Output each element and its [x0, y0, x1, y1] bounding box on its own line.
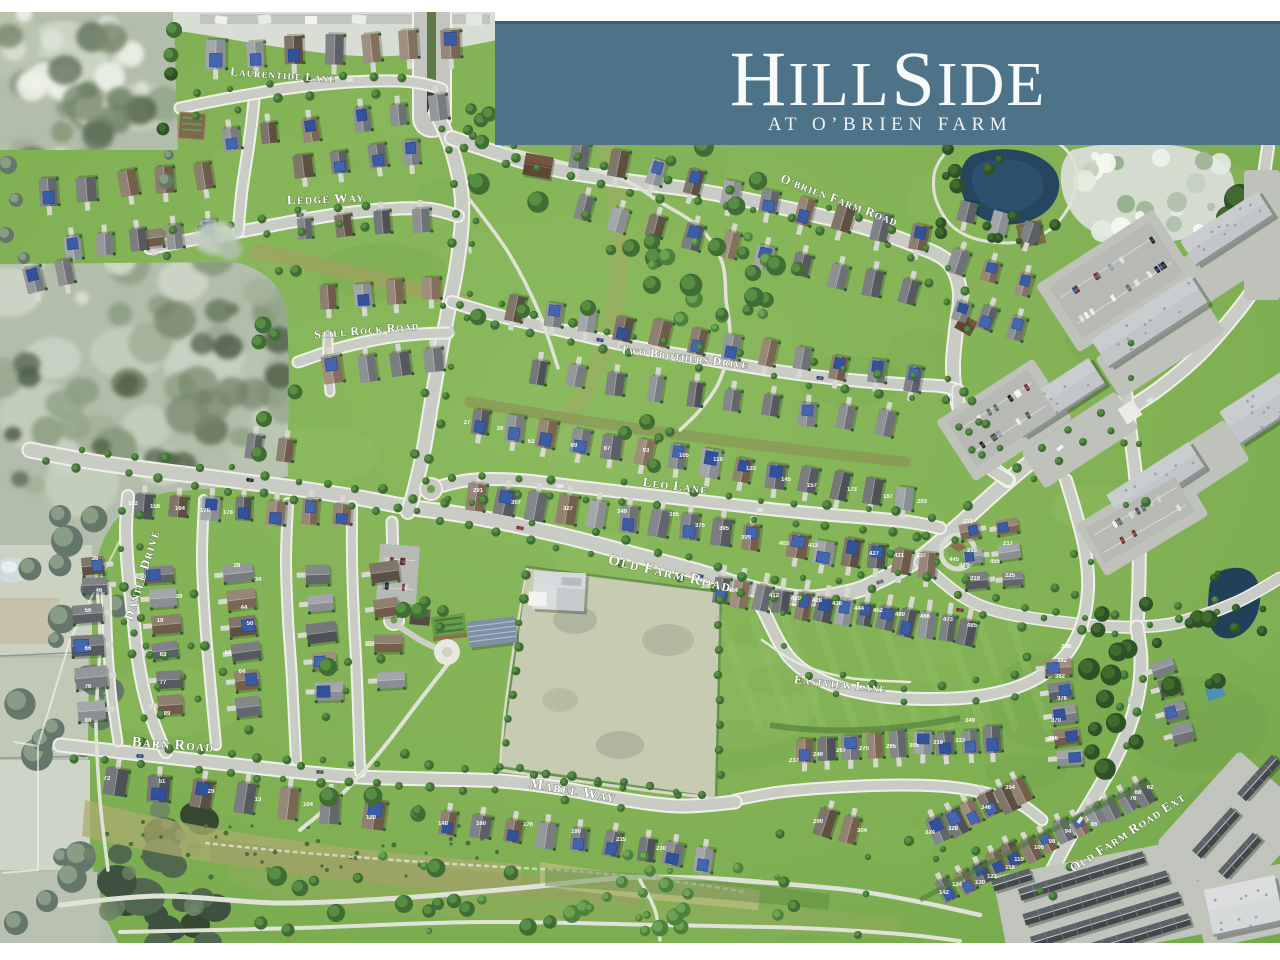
- svg-text:420: 420: [791, 596, 802, 602]
- svg-text:170: 170: [200, 508, 211, 514]
- svg-text:190: 190: [571, 829, 582, 835]
- svg-text:473: 473: [943, 617, 954, 623]
- svg-text:211: 211: [963, 519, 973, 525]
- svg-text:158: 158: [150, 504, 161, 510]
- svg-text:412: 412: [769, 593, 780, 599]
- svg-text:148: 148: [438, 821, 449, 827]
- svg-text:427: 427: [869, 551, 880, 557]
- svg-text:145: 145: [781, 477, 792, 483]
- svg-text:290: 290: [813, 819, 824, 825]
- svg-text:142: 142: [939, 890, 950, 896]
- svg-text:66: 66: [85, 646, 92, 652]
- svg-text:69: 69: [571, 443, 578, 449]
- svg-text:68: 68: [1135, 790, 1142, 796]
- svg-text:56: 56: [85, 608, 92, 614]
- svg-text:76: 76: [85, 684, 92, 690]
- svg-text:349: 349: [617, 509, 628, 515]
- svg-text:395: 395: [719, 526, 730, 532]
- svg-text:51: 51: [159, 779, 166, 785]
- svg-text:152: 152: [128, 501, 139, 507]
- svg-text:87: 87: [604, 446, 611, 452]
- svg-text:173: 173: [847, 487, 858, 493]
- svg-text:370: 370: [1051, 718, 1062, 724]
- svg-text:365: 365: [669, 512, 680, 518]
- svg-text:455: 455: [990, 559, 1001, 565]
- svg-text:130: 130: [975, 880, 986, 886]
- svg-text:382: 382: [1055, 674, 1066, 680]
- svg-text:34: 34: [255, 577, 262, 583]
- svg-text:354: 354: [1005, 785, 1016, 791]
- svg-text:89: 89: [164, 711, 171, 717]
- svg-text:160: 160: [476, 821, 487, 827]
- svg-text:437: 437: [916, 553, 927, 559]
- svg-text:324: 324: [925, 830, 936, 836]
- svg-text:106: 106: [1034, 845, 1045, 851]
- svg-text:275: 275: [859, 746, 870, 752]
- svg-text:118: 118: [1005, 865, 1015, 871]
- svg-text:122: 122: [987, 874, 998, 880]
- svg-text:178: 178: [223, 510, 234, 516]
- svg-text:466: 466: [920, 614, 931, 620]
- svg-text:327: 327: [563, 506, 574, 512]
- svg-text:398: 398: [1061, 644, 1072, 650]
- svg-text:217: 217: [1003, 541, 1014, 547]
- svg-text:225: 225: [1005, 573, 1016, 579]
- svg-text:403: 403: [779, 541, 790, 547]
- svg-text:39: 39: [497, 426, 504, 432]
- svg-text:39: 39: [176, 594, 183, 600]
- svg-text:29: 29: [208, 789, 215, 795]
- svg-text:119: 119: [713, 457, 723, 463]
- svg-text:305: 305: [909, 743, 920, 749]
- svg-text:460: 460: [895, 612, 906, 618]
- svg-text:94: 94: [1065, 829, 1072, 835]
- svg-text:428: 428: [812, 598, 823, 604]
- svg-text:215: 215: [967, 548, 978, 554]
- svg-text:399: 399: [741, 535, 752, 541]
- svg-text:58: 58: [225, 650, 232, 656]
- svg-text:50: 50: [247, 621, 254, 627]
- svg-text:27: 27: [464, 420, 471, 426]
- svg-text:64: 64: [239, 669, 246, 675]
- svg-text:436: 436: [832, 601, 843, 607]
- svg-text:88: 88: [85, 718, 92, 724]
- svg-text:98: 98: [1049, 839, 1056, 845]
- svg-text:319: 319: [933, 740, 944, 746]
- svg-text:93: 93: [643, 448, 650, 454]
- svg-text:333: 333: [955, 738, 966, 744]
- svg-text:304: 304: [857, 828, 868, 834]
- svg-text:328: 328: [948, 826, 959, 832]
- svg-text:104: 104: [303, 802, 314, 808]
- svg-text:203: 203: [917, 499, 928, 505]
- svg-text:249: 249: [813, 752, 824, 758]
- svg-text:72: 72: [104, 776, 111, 782]
- svg-text:120: 120: [366, 815, 377, 821]
- svg-text:431: 431: [894, 553, 905, 559]
- svg-text:13: 13: [255, 797, 262, 803]
- svg-text:307: 307: [511, 500, 522, 506]
- svg-text:366: 366: [1048, 736, 1059, 742]
- svg-text:157: 157: [807, 483, 818, 489]
- svg-text:215: 215: [616, 837, 627, 843]
- svg-text:44: 44: [241, 605, 248, 611]
- svg-text:237: 237: [789, 758, 800, 764]
- svg-text:76: 76: [1130, 796, 1137, 802]
- svg-text:230: 230: [656, 846, 667, 852]
- svg-text:376: 376: [1057, 696, 1068, 702]
- svg-text:110: 110: [1014, 857, 1024, 863]
- svg-text:444: 444: [854, 606, 865, 612]
- svg-text:19: 19: [157, 618, 164, 624]
- svg-text:176: 176: [523, 822, 534, 828]
- svg-text:485: 485: [967, 623, 978, 629]
- svg-text:291: 291: [473, 488, 484, 494]
- svg-text:62: 62: [1147, 785, 1154, 791]
- svg-text:46: 46: [96, 588, 103, 594]
- svg-text:349: 349: [965, 718, 976, 724]
- svg-text:187: 187: [883, 494, 894, 500]
- svg-text:375: 375: [695, 523, 706, 529]
- svg-text:36: 36: [92, 556, 99, 562]
- svg-text:392: 392: [1057, 658, 1068, 664]
- svg-text:77: 77: [160, 680, 167, 686]
- svg-text:53: 53: [528, 439, 535, 445]
- svg-text:86: 86: [1091, 822, 1098, 828]
- svg-text:28: 28: [234, 563, 241, 569]
- svg-text:219: 219: [970, 576, 981, 582]
- svg-text:133: 133: [746, 466, 757, 472]
- svg-text:164: 164: [175, 506, 186, 512]
- svg-text:AT O’BRIEN FARM: AT O’BRIEN FARM: [768, 114, 1012, 135]
- svg-text:452: 452: [873, 608, 884, 614]
- svg-text:267: 267: [836, 748, 847, 754]
- svg-text:63: 63: [160, 652, 167, 658]
- svg-text:449: 449: [959, 563, 970, 569]
- svg-text:105: 105: [679, 453, 690, 459]
- svg-text:134: 134: [952, 882, 963, 888]
- svg-text:413: 413: [808, 543, 819, 549]
- svg-text:346: 346: [981, 805, 992, 811]
- svg-text:295: 295: [886, 744, 897, 750]
